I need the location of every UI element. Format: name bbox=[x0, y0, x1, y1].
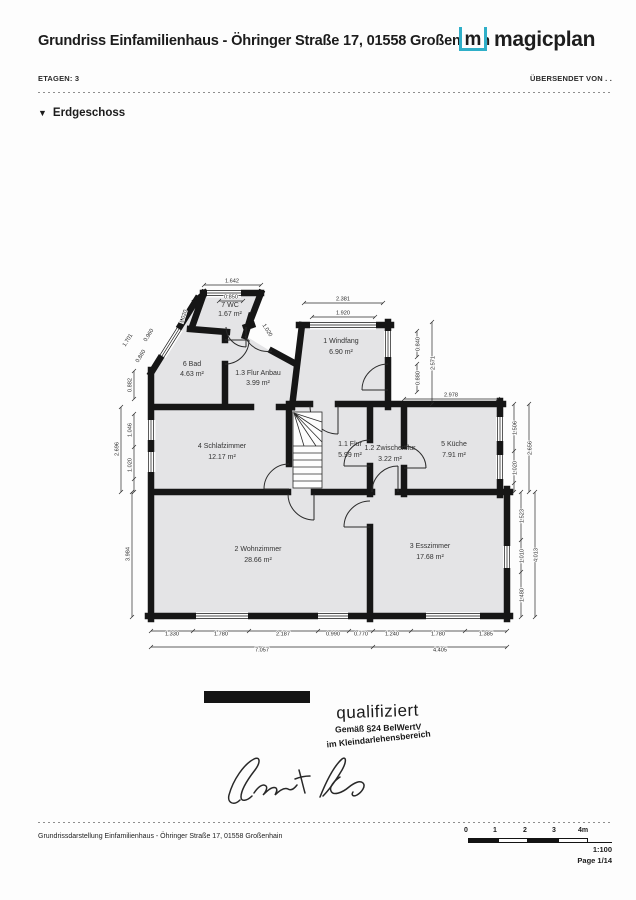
dim-label: 1.385 bbox=[479, 632, 493, 638]
dim-label: 1.523 bbox=[520, 509, 526, 523]
dim-label: 1.020 bbox=[128, 458, 134, 472]
room-name: 1.2 Zwischenflur bbox=[365, 445, 417, 452]
dim-label: 4.013 bbox=[534, 548, 540, 562]
lower-band-fill bbox=[151, 492, 507, 616]
staircase bbox=[293, 412, 322, 488]
dim-label: 2.656 bbox=[528, 441, 534, 455]
room-name: 1.1 Flur bbox=[338, 441, 362, 448]
footer-caption: Grundrissdarstellung Einfamilienhaus - Ö… bbox=[38, 833, 282, 840]
scale-ratio: 1:100 bbox=[462, 845, 612, 854]
dim-label: 2.696 bbox=[115, 442, 121, 456]
dim-label: 1.701 bbox=[122, 333, 135, 348]
dim-label: 1.330 bbox=[165, 632, 179, 638]
dim-label: 0.860 bbox=[135, 349, 148, 364]
dim-label: 1.480 bbox=[520, 588, 526, 602]
dim-label: 1.240 bbox=[385, 632, 399, 638]
dim-label: 7.057 bbox=[255, 648, 269, 654]
scale-bar-baseline bbox=[468, 842, 612, 843]
scale-tick: 1 bbox=[493, 827, 497, 834]
dim-label: 2.571 bbox=[431, 356, 437, 370]
qualification-stamp: qualifiziert Gemäß §24 BelWertV im Klein… bbox=[297, 699, 458, 747]
room-name: 7 WC bbox=[221, 302, 239, 309]
dim-label: 1.780 bbox=[431, 632, 445, 638]
dim-label: 0.990 bbox=[326, 632, 340, 638]
dim-label: 0.850 bbox=[224, 295, 238, 301]
room-area: 12.17 m² bbox=[208, 454, 236, 461]
room-area: 17.68 m² bbox=[416, 554, 444, 561]
dim-label: 1.010 bbox=[520, 549, 526, 563]
room-name: 2 Wohnzimmer bbox=[235, 546, 283, 553]
room-name: 5 Küche bbox=[441, 441, 467, 448]
dim-label: 2.187 bbox=[276, 632, 290, 638]
room-area: 3.22 m² bbox=[378, 456, 402, 463]
dim-label: 1.920 bbox=[336, 311, 350, 317]
room-name: 6 Bad bbox=[183, 361, 201, 368]
signature bbox=[229, 758, 364, 803]
windfang-fill bbox=[292, 325, 388, 404]
dim-label: 0.840 bbox=[416, 337, 422, 351]
dim-label: 1.780 bbox=[214, 632, 228, 638]
dim-label: 1.642 bbox=[225, 279, 239, 285]
footer-separator bbox=[38, 822, 612, 823]
scale-tick: 3 bbox=[552, 827, 556, 834]
room-area: 3.99 m² bbox=[246, 380, 270, 387]
scale-tick: 0 bbox=[464, 827, 468, 834]
room-area: 28.66 m² bbox=[244, 557, 272, 564]
room-area: 7.91 m² bbox=[442, 452, 466, 459]
dim-label: 2.381 bbox=[336, 297, 350, 303]
dim-label: 1.020 bbox=[513, 461, 519, 475]
dim-label: 0.960 bbox=[143, 328, 156, 343]
page-number: Page 1/14 bbox=[462, 856, 612, 865]
dim-label: 1.506 bbox=[513, 421, 519, 435]
dim-label: 4.405 bbox=[433, 648, 447, 654]
room-area: 4.63 m² bbox=[180, 371, 204, 378]
room-area: 1.67 m² bbox=[218, 311, 242, 318]
dim-label: 0.880 bbox=[416, 371, 422, 385]
room-name: 4 Schlafzimmer bbox=[198, 443, 247, 450]
room-name: 1 Windfang bbox=[323, 338, 359, 345]
room-area: 5.99 m² bbox=[338, 452, 362, 459]
room-area: 6.90 m² bbox=[329, 349, 353, 356]
dim-label: 0.770 bbox=[354, 632, 368, 638]
dim-label: 2.978 bbox=[444, 393, 458, 399]
room-name: 3 Esszimmer bbox=[410, 543, 451, 550]
document-page: Grundriss Einfamilienhaus - Öhringer Str… bbox=[0, 0, 636, 900]
scale-tick: 2 bbox=[523, 827, 527, 834]
scale-tick: 4m bbox=[578, 827, 588, 834]
floor-plan-svg: 1.330 1.780 2.187 0.990 0.770 1.240 1.78… bbox=[0, 0, 636, 900]
room-name: 1.3 Flur Anbau bbox=[235, 370, 281, 377]
dim-label: 0.882 bbox=[128, 378, 134, 392]
dim-label: 1.046 bbox=[128, 423, 134, 437]
redaction-bar bbox=[204, 691, 310, 703]
dim-label: 1.020 bbox=[261, 323, 274, 338]
dim-label: 3.984 bbox=[126, 547, 132, 561]
